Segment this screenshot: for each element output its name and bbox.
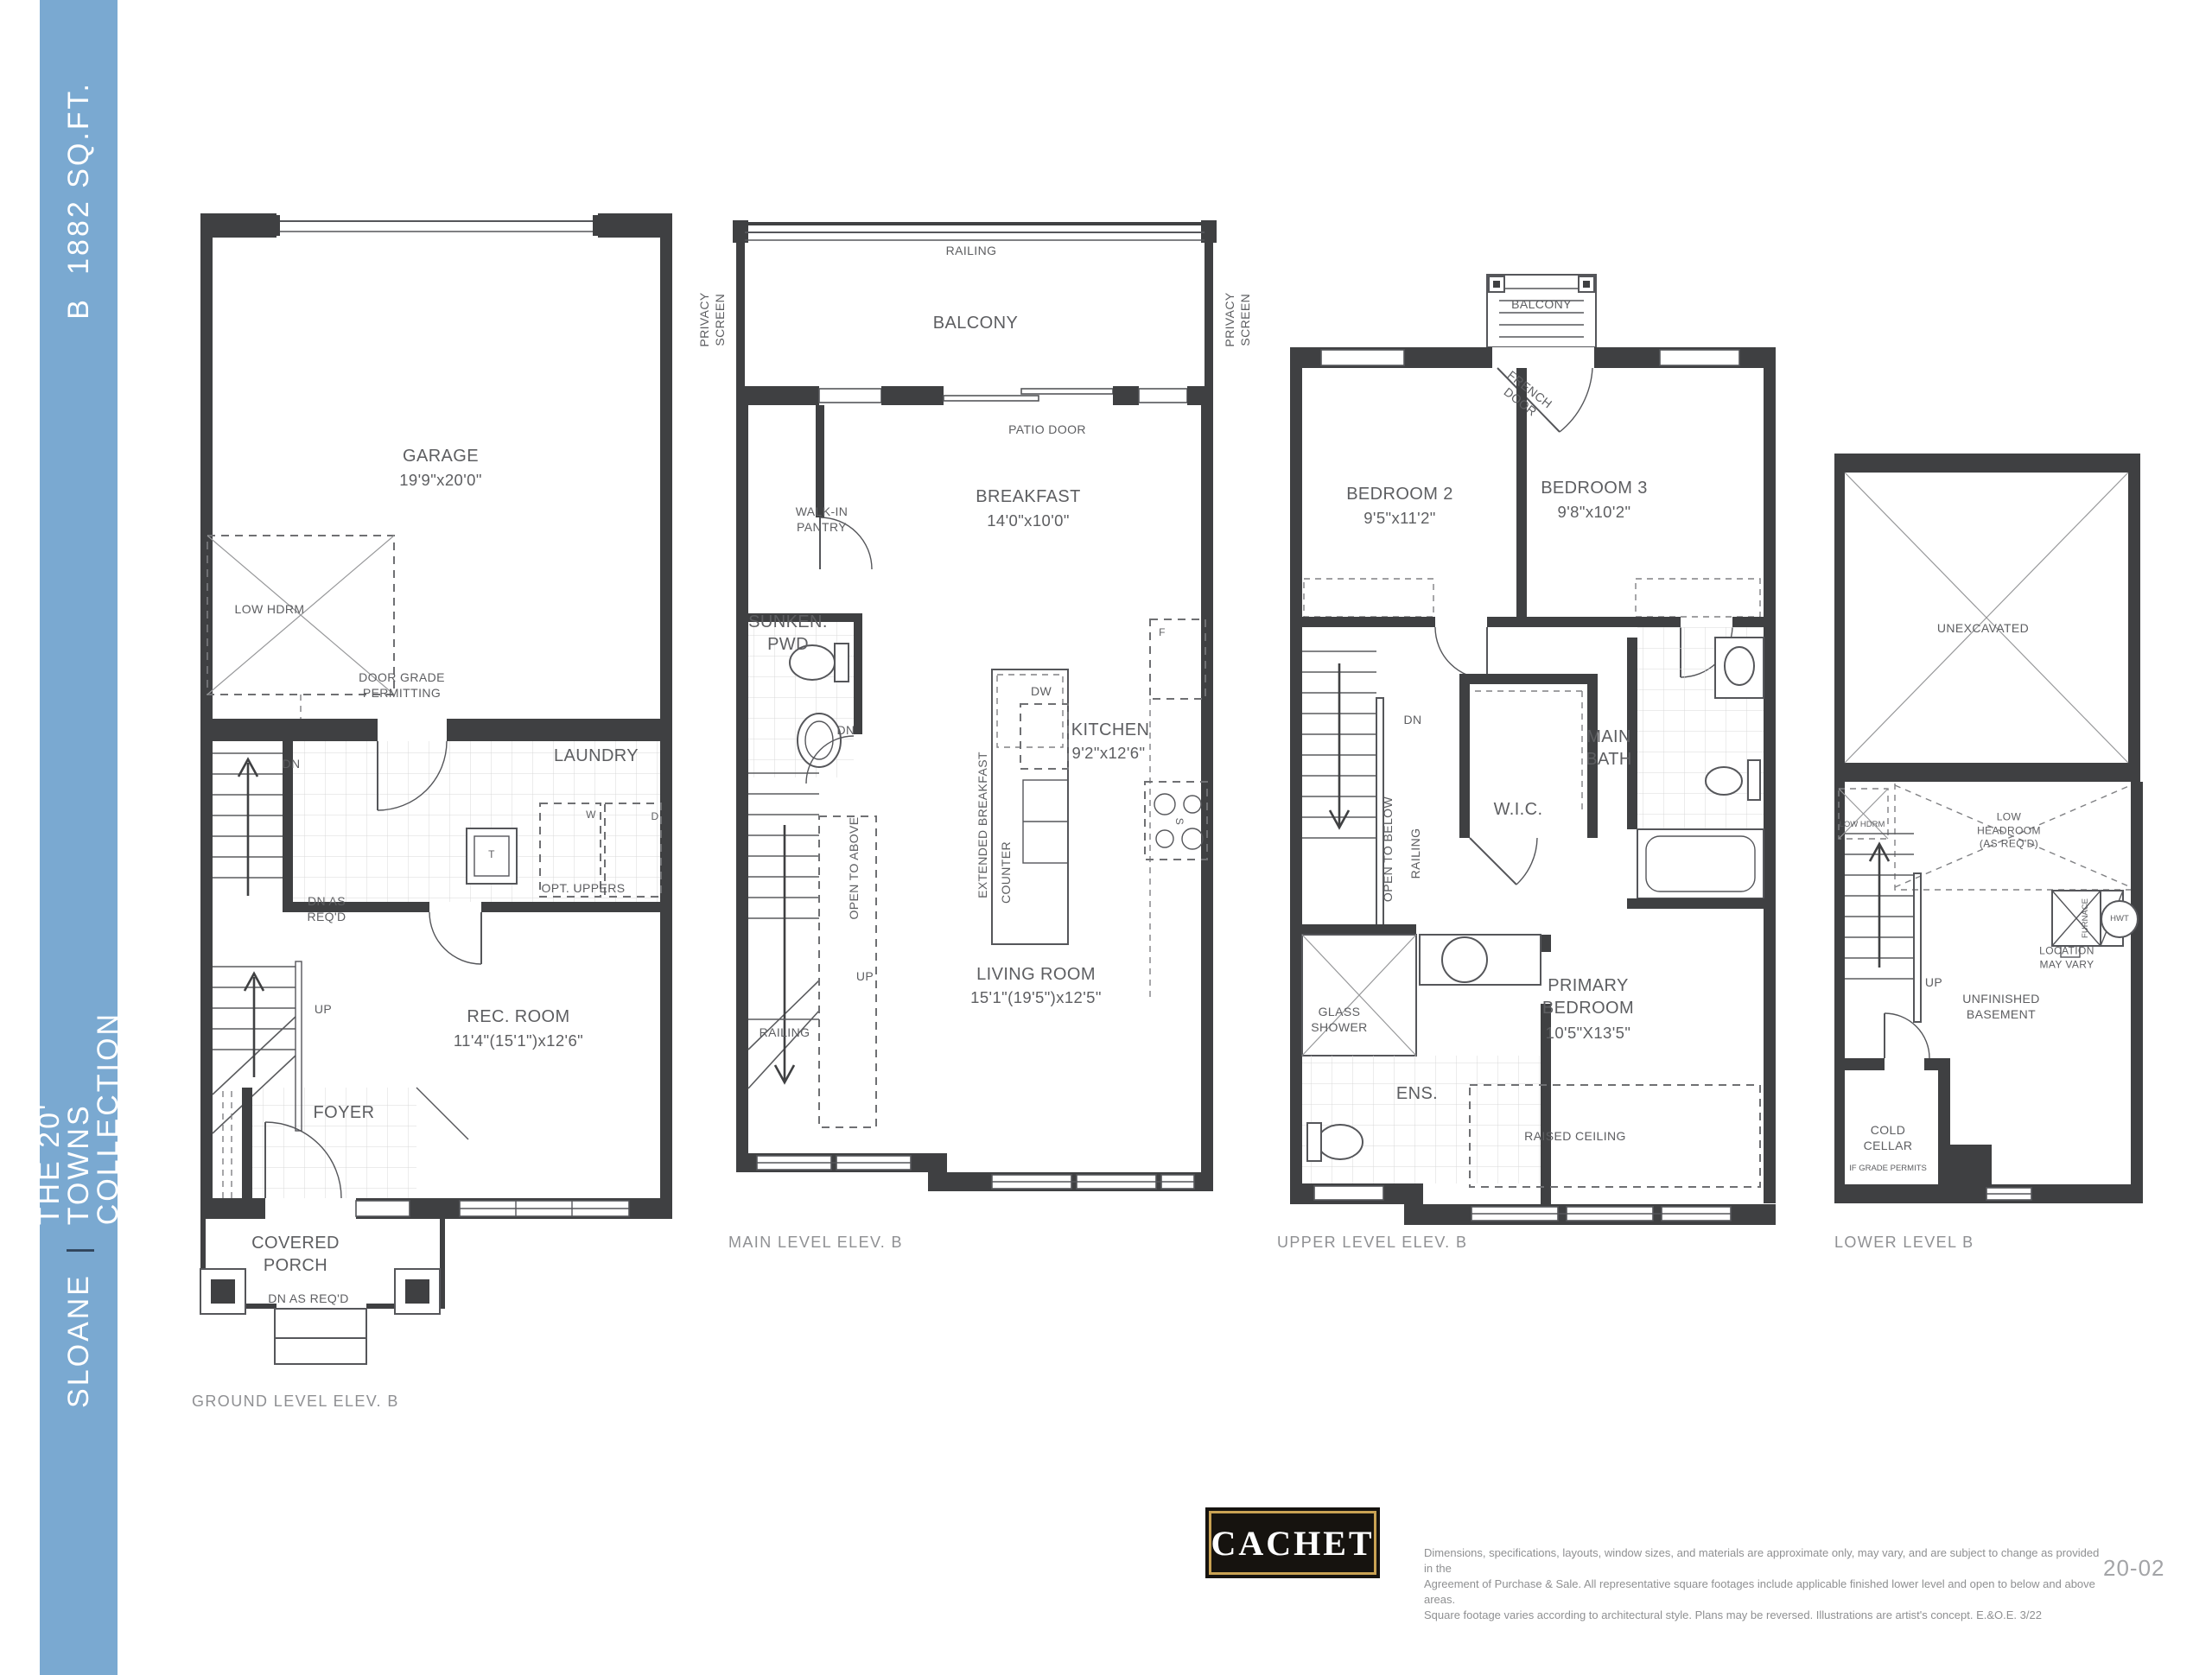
up-label: UP	[315, 1001, 332, 1017]
unexcavated-label: UNEXCAVATED	[1937, 620, 2029, 636]
garage-label: GARAGE	[403, 445, 479, 467]
kitchen-dims: 9'2"x12'6"	[1072, 743, 1146, 764]
dishwasher-label: DW	[1031, 683, 1052, 699]
stairs-down	[1302, 651, 1383, 962]
disclaimer-line-3: Square footage varies according to archi…	[1424, 1608, 2107, 1623]
glass-shower-stall	[1302, 924, 1416, 1056]
stove-label: S	[1172, 818, 1185, 825]
cold-cellar-label: COLD CELLAR	[1864, 1122, 1913, 1153]
patio-door-label: PATIO DOOR	[1008, 422, 1086, 437]
rec-room-windows	[460, 1201, 629, 1216]
low-headroom-label: LOW HEADROOM (AS REQ'D)	[1977, 811, 2041, 852]
privacy-screen-right-label: PRIVACY SCREEN	[1222, 292, 1253, 346]
patio-door	[944, 389, 1113, 401]
basement-window	[1986, 1188, 2031, 1200]
garage-door	[273, 215, 600, 236]
cachet-logo-text: CACHET	[1211, 1523, 1374, 1564]
living-room-dims: 15'1"(19'5")x12'5"	[970, 987, 1102, 1008]
wic-label: W.I.C.	[1494, 798, 1543, 821]
furnace-label: FURNACE	[2081, 898, 2091, 938]
bedroom3-label: BEDROOM 3	[1541, 477, 1648, 499]
up-label: UP	[856, 968, 874, 984]
stairs-down	[213, 753, 283, 896]
plan-sqft-label: B 1882 SQ.FT.	[40, 78, 118, 320]
bedroom2-dims: 9'5"x11'2"	[1363, 508, 1436, 529]
bathtub	[1637, 829, 1764, 898]
open-to-above-label: OPEN TO ABOVE	[846, 816, 861, 919]
balcony-label: BALCONY	[1511, 296, 1572, 312]
privacy-screen-left-label: PRIVACY SCREEN	[696, 292, 728, 346]
dn-label: DN	[836, 722, 855, 738]
rec-room-label: REC. ROOM	[467, 1006, 569, 1028]
upper-level-plan: BALCONY FRENCH DOOR BEDROOM 2 9'5"x11'2"…	[1290, 275, 1776, 1203]
community-name: SLOANE	[64, 1273, 93, 1408]
low-hdrm-label: LOW HDRM	[235, 601, 305, 617]
railing-stairs-label: RAILING	[760, 1025, 810, 1040]
disclaimer-line-1: Dimensions, specifications, layouts, win…	[1424, 1545, 2107, 1577]
porch-dn-label: DN AS REQ'D	[268, 1291, 348, 1306]
main-level-plan: RAILING BALCONY PRIVACY SCREEN PRIVACY S…	[733, 220, 1217, 1201]
bedroom3-dims: 9'8"x10'2"	[1558, 502, 1631, 523]
walk-in-pantry-label: WALK-IN PANTRY	[796, 504, 849, 535]
main-level-caption: MAIN LEVEL ELEV. B	[728, 1234, 903, 1252]
page-number: 20-02	[2103, 1555, 2165, 1582]
brochure-page: B 1882 SQ.FT. SLOANE | THE 20' TOWNS COL…	[0, 0, 2212, 1675]
disclaimer-line-2: Agreement of Purchase & Sale. All repres…	[1424, 1577, 2107, 1608]
ground-level-caption: GROUND LEVEL ELEV. B	[192, 1393, 399, 1411]
living-room-windows-right	[992, 1175, 1194, 1189]
disclaimer: Dimensions, specifications, layouts, win…	[1424, 1545, 2107, 1623]
cold-cellar-structure	[1834, 1013, 1992, 1184]
extended-counter-label-1: EXTENDED BREAKFAST	[975, 752, 990, 898]
glass-shower-label: GLASS SHOWER	[1311, 1004, 1367, 1035]
railing-label: RAILING	[946, 243, 997, 258]
location-may-vary-label: LOCATION MAY VARY	[2039, 944, 2094, 971]
rec-room-dims: 11'4"(15'1")x12'6"	[454, 1031, 583, 1051]
ens-counter-sink	[1420, 935, 1541, 985]
living-room-label: LIVING ROOM	[976, 963, 1096, 986]
stairs-up	[1845, 834, 1921, 1022]
dn-label: DN	[1403, 712, 1421, 727]
fridge-label: F	[1159, 626, 1166, 640]
breakfast-dims: 14'0"x10'0"	[987, 511, 1070, 531]
dn-as-reqd-label: DN AS REQ'D	[307, 893, 346, 924]
washer-label: W	[586, 809, 596, 822]
sunken-pwd-label: SUNKEN. PWD	[748, 611, 828, 656]
door-grade-label: DOOR GRADE PERMITTING	[359, 669, 445, 701]
covered-porch-label: COVERED PORCH	[251, 1232, 340, 1277]
lower-level-caption: LOWER LEVEL B	[1834, 1234, 1974, 1252]
primary-windows	[1471, 1207, 1731, 1221]
door-swing	[429, 912, 481, 964]
dn-label: DN	[282, 756, 300, 771]
cachet-logo-frame: CACHET	[1209, 1511, 1376, 1575]
opt-uppers-label: OPT. UPPERS	[542, 880, 626, 896]
ground-level-plan: GARAGE 19'9"x20'0" LOW HDRM DOOR GRADE P…	[200, 213, 672, 1375]
kitchen-label: KITCHEN	[1071, 719, 1150, 741]
upper-level-caption: UPPER LEVEL ELEV. B	[1277, 1234, 1467, 1252]
foyer-label: FOYER	[314, 1101, 375, 1124]
raised-ceiling-label: RAISED CEILING	[1524, 1128, 1626, 1144]
ens-label: ENS.	[1396, 1082, 1438, 1105]
community-collection-label: SLOANE | THE 20' TOWNS COLLECTION	[40, 1028, 118, 1408]
laundry-label: LAUNDRY	[554, 745, 639, 767]
main-bath-label: MAIN BATH	[1586, 726, 1631, 771]
main-plan-drawing	[733, 220, 1217, 1201]
if-grade-permits-label: IF GRADE PERMITS	[1849, 1164, 1927, 1174]
sidebar: B 1882 SQ.FT. SLOANE | THE 20' TOWNS COL…	[40, 0, 118, 1675]
primary-bedroom-dims: 10'5"X13'5"	[1546, 1023, 1631, 1044]
open-to-below-label: OPEN TO BELOW	[1380, 796, 1395, 902]
ens-toilet	[1307, 1123, 1363, 1161]
primary-bedroom-label: PRIMARY BEDROOM	[1542, 974, 1634, 1019]
separator: |	[64, 1244, 93, 1254]
breakfast-label: BREAKFAST	[976, 485, 1080, 508]
up-label: UP	[1925, 974, 1942, 990]
bath-sink	[1715, 638, 1764, 698]
garage-dims: 19'9"x20'0"	[399, 470, 482, 491]
sqft-label: 1882 SQ.FT.	[64, 81, 93, 275]
extended-counter-label-2: COUNTER	[998, 841, 1014, 904]
collection-name: THE 20' TOWNS COLLECTION	[35, 1012, 123, 1225]
ground-plan-drawing	[200, 213, 672, 1375]
tub-label: T	[488, 848, 495, 862]
unfinished-basement-label: UNFINISHED BASEMENT	[1962, 991, 2040, 1022]
low-hdrm-label: LOW HDRM	[1840, 820, 1885, 830]
walk-in-closet	[1459, 674, 1598, 885]
door-swing	[1435, 627, 1487, 679]
railing-label: RAILING	[1408, 828, 1423, 879]
cachet-logo: CACHET	[1205, 1507, 1380, 1578]
dryer-label: D	[651, 810, 658, 824]
lower-level-plan: UNEXCAVATED LOW HDRM LOW HEADROOM (AS RE…	[1834, 454, 2206, 1248]
balcony-label: BALCONY	[933, 312, 1018, 334]
model-letter: B	[64, 297, 93, 320]
hwt-label: HWT	[2110, 914, 2129, 924]
bedroom2-label: BEDROOM 2	[1346, 483, 1453, 505]
